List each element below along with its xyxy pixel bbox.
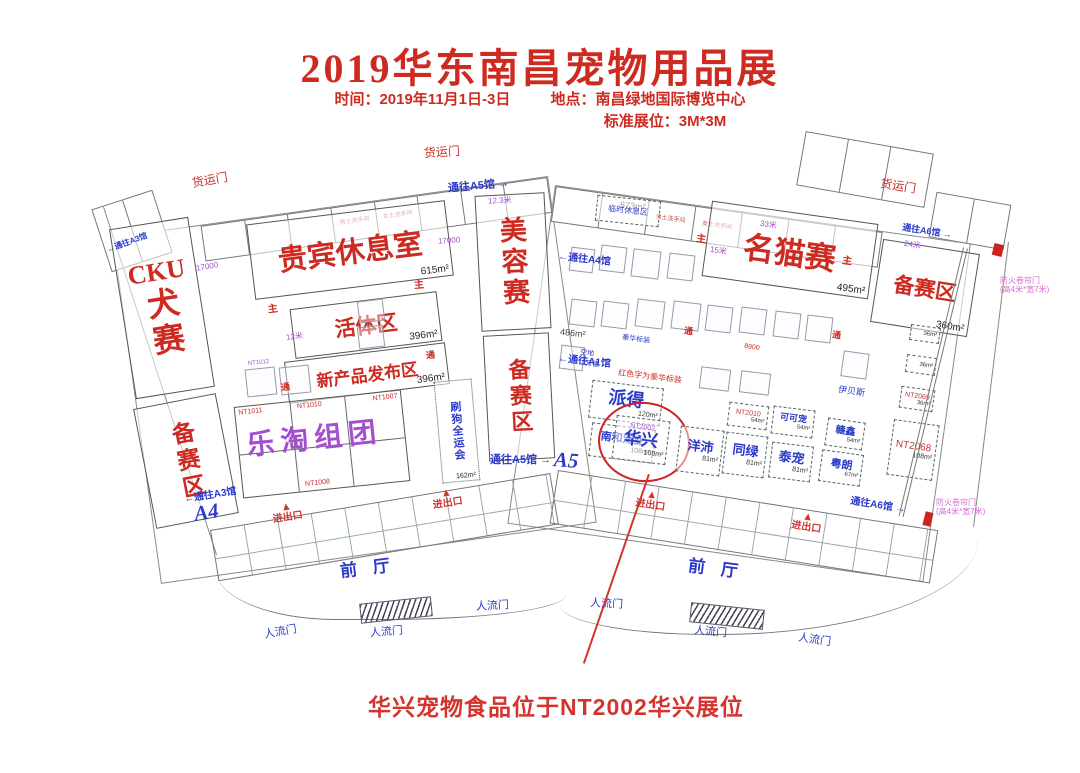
fire-shutter-marker-top [992,243,1005,257]
event-time: 时间：2019年11月1日-3日 [334,91,510,108]
hall-a4-label: A4 [192,498,220,526]
cargo-door-1: 货运门 [191,171,229,191]
main-aisle-marker-1: 主 [267,303,278,316]
annotation-text: 华兴宠物食品位于NT2002华兴展位 [368,688,744,722]
floorplan-poster: 2019华东南昌宠物用品展 时间：2019年11月1日-3日 地点：南昌绿地国际… [0,0,1080,773]
aisle-marker-3: 通 [683,325,693,336]
cargo-door-2: 货运门 [424,145,461,161]
main-aisle-marker-3: 主 [695,233,707,246]
aisle-marker-4: 通 [831,329,841,340]
dim-17000-right: 17000 [438,235,461,246]
passage-a5-bottom: 通往A5馆 → [490,454,551,467]
subtitle: 时间：2019年11月1日-3日 地点：南昌绿地国际博览中心 [0,88,1080,109]
right-arrow-icon: → [540,454,551,466]
booth-spec: 标准展位：3M*3M [125,110,1080,131]
page-title: 2019华东南昌宠物用品展 [0,36,1080,94]
people-door-3: 人流门 [476,599,510,613]
right-arrow-icon: → [497,177,509,190]
people-door-6: 人流门 [797,632,831,649]
exit-label-4: ▲ 进出口 [791,510,824,535]
main-aisle-marker-4: 主 [841,255,853,268]
hall-a5-label: A5 [553,447,579,473]
people-door-5: 人流门 [694,625,728,640]
fire-shutter-label-top: 防火卷帘门 (高4米*宽7米) [1000,276,1049,294]
main-aisle-marker-2: 主 [414,280,425,292]
dog-show-label: 犬赛 [136,284,193,362]
people-door-1: 人流门 [263,623,298,641]
people-door-2: 人流门 [370,625,404,640]
aisle-marker-2: 通 [426,350,436,361]
aisle-marker-1: 通 [280,381,290,392]
event-location: 地点：南昌绿地国际博览中心 [551,91,746,108]
dim-12-3: 12.3米 [488,195,512,205]
right-arrow-icon: → [942,229,952,240]
fire-shutter-label-bottom: 防火卷帘门 (高4米*宽7米) [936,498,985,516]
